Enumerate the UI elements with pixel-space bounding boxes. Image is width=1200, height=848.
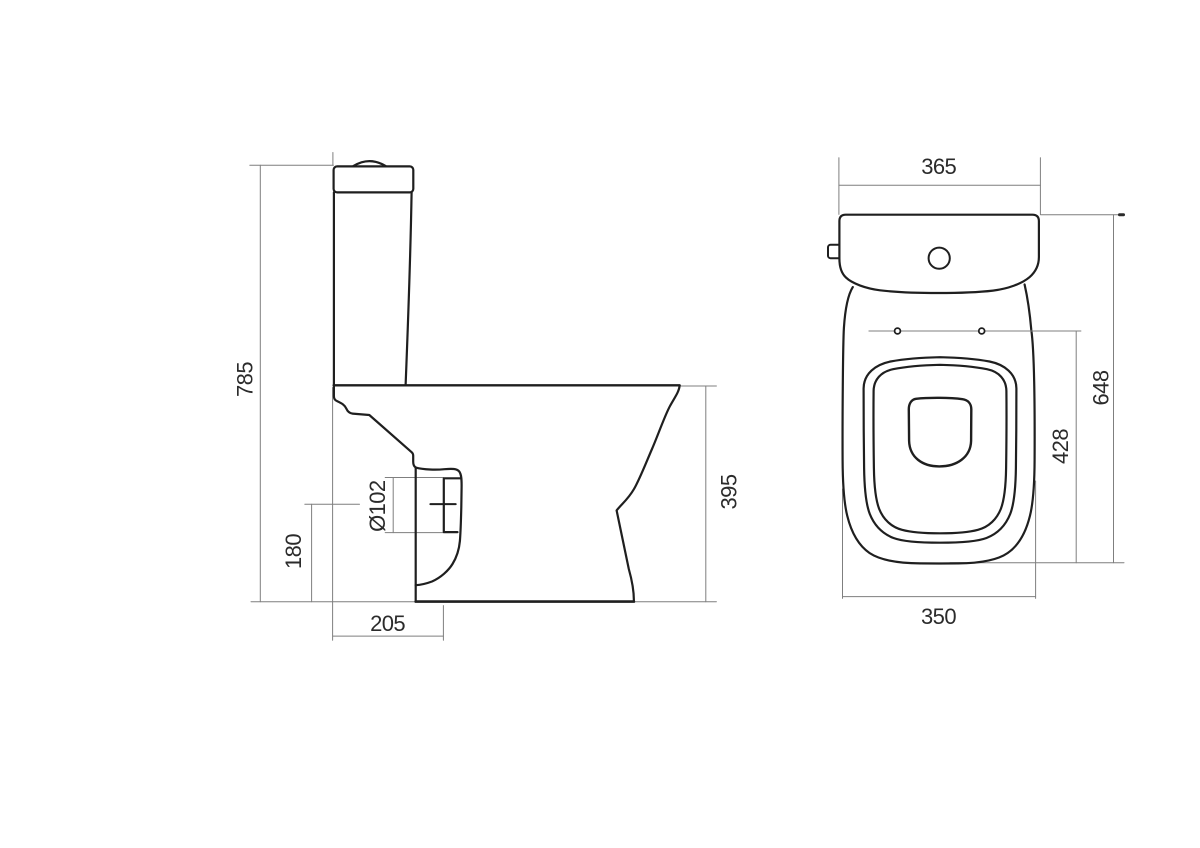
svg-text:Ø102: Ø102 — [365, 480, 390, 532]
svg-text:180: 180 — [281, 534, 306, 569]
svg-text:648: 648 — [1089, 370, 1114, 405]
svg-text:350: 350 — [921, 604, 956, 629]
svg-text:395: 395 — [717, 474, 742, 509]
svg-text:785: 785 — [233, 362, 258, 397]
svg-text:365: 365 — [921, 154, 956, 179]
svg-text:205: 205 — [370, 611, 405, 636]
svg-text:428: 428 — [1048, 429, 1073, 464]
